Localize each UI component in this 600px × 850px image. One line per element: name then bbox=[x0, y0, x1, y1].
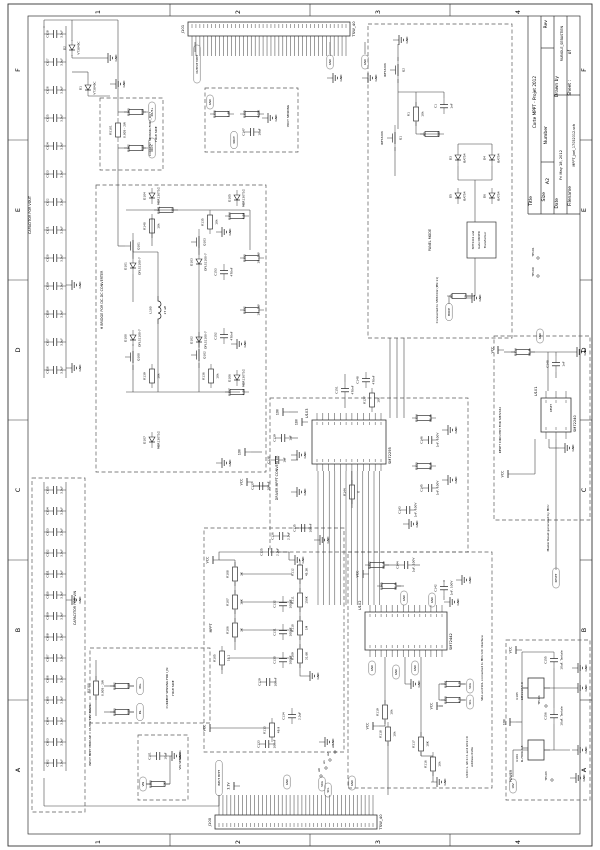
ic-part: R-7809-0.5 bbox=[520, 745, 524, 762]
block-power bbox=[506, 640, 590, 800]
gnd-label: GND bbox=[78, 596, 82, 604]
block-vin-caps bbox=[32, 478, 85, 812]
cap-ref: C156 bbox=[544, 712, 548, 720]
ic-part: LM1117-5.0 bbox=[520, 682, 524, 700]
resistor-body bbox=[350, 485, 355, 499]
zone-col-label: 2 bbox=[234, 10, 242, 14]
cap-ref: C123 bbox=[46, 170, 50, 178]
ic-ref: U103 bbox=[305, 409, 309, 419]
resistor-body bbox=[270, 723, 275, 737]
size-value: A2 bbox=[547, 178, 552, 184]
resistor-body bbox=[383, 705, 388, 719]
res-value: 45.3K bbox=[305, 568, 309, 576]
ic-body-U101 bbox=[541, 398, 571, 432]
cap-ref: C152 bbox=[214, 332, 218, 340]
cap-value: 3.3uF bbox=[60, 198, 64, 206]
gnd-label: GND bbox=[122, 80, 126, 88]
res-value: 68.4k bbox=[382, 561, 386, 569]
annotation: PANEL MODE bbox=[428, 229, 432, 251]
cap-ref: C126 bbox=[46, 86, 50, 94]
annotation: INPUT MPPT MODULE = OUTPUT PV PANEL bbox=[88, 704, 92, 766]
res-value: 10k bbox=[438, 761, 442, 767]
cap-ref: C140 bbox=[546, 360, 550, 368]
cap-value: 3.3uF bbox=[60, 254, 64, 262]
inductor-ref: L100 bbox=[149, 306, 153, 313]
res-ref: R1 bbox=[407, 112, 411, 116]
connector-body-J100 bbox=[215, 815, 377, 829]
gnd-label: GND bbox=[583, 348, 587, 356]
res-value: 68.4k bbox=[429, 414, 433, 422]
res-ref: R122 bbox=[368, 561, 372, 569]
rev-label: Rev bbox=[545, 20, 550, 29]
resistor-body bbox=[298, 565, 303, 579]
diode-ref: D6 bbox=[483, 194, 487, 198]
annotation: TP103 bbox=[544, 771, 548, 781]
cap-ref: C143 bbox=[398, 506, 402, 514]
res-value: 10 - 1W bbox=[257, 252, 261, 263]
block-panel-mode bbox=[368, 24, 512, 338]
mosfet-ref: Q1 bbox=[399, 136, 403, 140]
net-label-text: GND bbox=[285, 779, 289, 785]
cap-value: 470nF bbox=[230, 267, 234, 276]
cap-value: 1nF, 100V bbox=[436, 481, 440, 496]
net-label-text: SDA bbox=[468, 683, 472, 689]
zone-row-label: B bbox=[580, 628, 588, 632]
gnd-label: GND bbox=[584, 684, 588, 692]
cap-ref: C112 bbox=[46, 549, 50, 557]
power-flag-label: VCC bbox=[206, 556, 210, 563]
drawn-by-label: Drawn by bbox=[556, 76, 560, 97]
cap-value: 3.3uF bbox=[60, 30, 64, 38]
cap-value: 3.3uF bbox=[60, 717, 64, 725]
gnd-label: GND bbox=[78, 281, 82, 289]
annotation: A2 bbox=[326, 752, 330, 756]
net-label-text: GND bbox=[430, 597, 434, 603]
net-label-text: RESET bbox=[554, 573, 558, 582]
block-vout-sending bbox=[205, 88, 298, 152]
resistor-body bbox=[298, 621, 303, 635]
cap-ref: C124 bbox=[46, 142, 50, 150]
wire-segment bbox=[219, 552, 262, 560]
res-ref: R134 bbox=[228, 212, 232, 220]
cap-ref: C109 bbox=[46, 612, 50, 620]
annotation: SM72442 and bbox=[471, 230, 475, 249]
res-ref: R116 bbox=[424, 760, 428, 768]
diode-symbol bbox=[69, 45, 75, 50]
cap-value: 3.3uF bbox=[60, 612, 64, 620]
cap-ref: C120 bbox=[46, 254, 50, 262]
net-label-text: INPUT MPPT bbox=[217, 770, 221, 786]
res-ref: R143 bbox=[127, 108, 131, 116]
cap-value: 3.3uF bbox=[60, 226, 64, 234]
zone-col-label: 1 bbox=[94, 840, 102, 844]
cap-value: 1uF bbox=[289, 435, 293, 441]
resistor-body bbox=[233, 595, 238, 609]
cap-value: 3.3uF bbox=[60, 170, 64, 178]
zone-row-label: C bbox=[580, 487, 588, 492]
block-mppt bbox=[204, 528, 344, 752]
res-value: 10k bbox=[393, 731, 397, 737]
cap-value: 3.3uF bbox=[60, 759, 64, 767]
gnd-label: GND bbox=[303, 488, 307, 496]
gnd-label: GND bbox=[454, 426, 458, 434]
ic-body-U104 bbox=[528, 740, 544, 760]
mosfet-value: IRFS3206 bbox=[380, 131, 384, 145]
res-ref: RS101 bbox=[109, 125, 113, 135]
gnd-label: GND bbox=[417, 680, 421, 688]
zone-row-label: F bbox=[580, 68, 588, 72]
gnd-label: GND bbox=[584, 664, 588, 672]
gnd-label: GND bbox=[274, 114, 278, 122]
res-value: 2K bbox=[163, 782, 167, 786]
gnd-label: GND bbox=[301, 556, 305, 564]
res-value: 499 bbox=[141, 145, 145, 151]
cap-ref: C136 bbox=[271, 532, 275, 540]
res-ref: R126 bbox=[213, 110, 217, 118]
resistor-body bbox=[209, 369, 214, 383]
res-ref: R121 bbox=[444, 680, 448, 688]
cap-value: 1nF, 100V bbox=[450, 581, 454, 596]
diode-ref: D3 bbox=[449, 156, 453, 160]
zone-col-label: 4 bbox=[514, 840, 522, 844]
res-value: 0.005 - 2W bbox=[123, 122, 127, 138]
zone-row-label: E bbox=[580, 208, 588, 212]
zone-row-label: F bbox=[14, 68, 22, 72]
diode-symbol bbox=[455, 155, 461, 160]
cap-ref: C103 bbox=[46, 738, 50, 746]
cap-ref: C138 bbox=[267, 456, 271, 464]
cap-value: 10uF, Tantale bbox=[560, 706, 564, 726]
cap-ref: C137 bbox=[251, 482, 255, 490]
net-label-text: IIN+ bbox=[138, 683, 142, 689]
cap-value: 3.3uF bbox=[60, 282, 64, 290]
ic-body-U105 bbox=[528, 678, 544, 698]
diode-ref: D4 bbox=[483, 156, 487, 160]
annotation: CURRENT SENSING FOR I_IN bbox=[165, 668, 169, 709]
power-flag-label: 18V bbox=[295, 418, 299, 425]
cap-ref: C118 bbox=[46, 310, 50, 318]
annotation: MPPT bbox=[209, 623, 213, 633]
resistor-body bbox=[150, 369, 155, 383]
res-ref: R139 bbox=[143, 372, 147, 380]
diode-value: DFLS1100-7 bbox=[138, 329, 142, 347]
cap-value: 100nF bbox=[267, 481, 271, 490]
diode-ref: D107 bbox=[143, 436, 147, 444]
res-value: 4.7k bbox=[458, 697, 462, 704]
annotation: HIGH SIDE bbox=[171, 680, 175, 695]
ic-ref: U105 bbox=[515, 692, 519, 700]
cap-value: 470nF bbox=[351, 385, 355, 394]
res-ref: R119 bbox=[376, 708, 380, 716]
diode-value: MBR130T1G bbox=[157, 431, 161, 449]
diode-value: VT3845C bbox=[77, 41, 81, 54]
connector-part: TSW_40 bbox=[378, 814, 383, 831]
res-value: 2K bbox=[240, 572, 244, 576]
diode-value: BAT54 bbox=[463, 153, 467, 162]
zone-col-label: 4 bbox=[514, 10, 522, 14]
cap-value: 1nF, 100V bbox=[414, 503, 418, 518]
res-ref: R120 bbox=[444, 696, 448, 704]
annotation: RESET bbox=[549, 404, 553, 412]
gnd-label: GND bbox=[468, 576, 472, 584]
net-label-text: GND bbox=[350, 780, 354, 786]
cap-ref: C125 bbox=[260, 548, 264, 556]
annotation: Address 0x8A bbox=[470, 747, 474, 767]
cap-ref: C125 bbox=[46, 114, 50, 122]
gnd-label: GND bbox=[405, 36, 409, 44]
net-label-text: GND bbox=[363, 59, 367, 65]
annotation: DRIVER MPPT CONVERTER bbox=[275, 455, 279, 500]
cap-ref: C130 bbox=[273, 656, 277, 664]
zone-col-label: 3 bbox=[374, 10, 382, 14]
gnd-label: GND bbox=[584, 746, 588, 754]
res-value: 2k bbox=[464, 294, 468, 298]
diode-value: DFLS1100-7 bbox=[204, 253, 208, 271]
cap-ref: C105 bbox=[46, 696, 50, 704]
testpoint-dot bbox=[329, 759, 331, 761]
cap-value: 1uF bbox=[283, 457, 287, 463]
power-flag-label: VCC bbox=[430, 702, 434, 709]
res-value: 499 bbox=[127, 683, 131, 689]
annotation: A0 bbox=[317, 768, 321, 772]
cap-ref: C134 bbox=[282, 712, 286, 720]
resistor-body bbox=[94, 681, 99, 695]
diode-value: BAT54 bbox=[463, 191, 467, 200]
gnd-label: GND bbox=[303, 451, 307, 459]
res-value: 49.9 bbox=[277, 727, 281, 734]
title-value: Corte MPPT - Projet 2012 bbox=[533, 76, 537, 128]
ic-ref: U102 bbox=[358, 601, 362, 611]
cap-ref: C121 bbox=[46, 226, 50, 234]
cap-ref: C151 bbox=[335, 386, 339, 394]
cap-value: 470nF bbox=[372, 375, 376, 384]
mosfet-ref: Q103 bbox=[203, 238, 207, 246]
annotation: Transformer bbox=[483, 231, 487, 249]
annotation: Gate DRIVER bbox=[477, 231, 481, 249]
gnd-label: GND bbox=[78, 364, 82, 372]
cap-ref: C142 bbox=[434, 584, 438, 592]
cap-ref: C110 bbox=[46, 591, 50, 599]
net-label-text: GND bbox=[413, 665, 417, 671]
res-ref: R114 bbox=[514, 348, 518, 356]
net-label-text: 18V bbox=[511, 783, 515, 788]
diode-value: MBR130T1G bbox=[242, 189, 246, 207]
diode-ref: D106 bbox=[228, 374, 232, 382]
res-value: 499 bbox=[127, 709, 131, 715]
annotation: TP101 bbox=[531, 247, 535, 257]
resistor-body bbox=[386, 727, 391, 741]
res-ref: R117 bbox=[412, 740, 416, 748]
diode-value: VT3845C bbox=[93, 81, 97, 94]
res-ref: R144 bbox=[343, 488, 347, 496]
res-ref: R102 bbox=[113, 682, 117, 690]
cap-value: 3.3uF bbox=[60, 58, 64, 66]
annotation: SDA and SCL connected to MCU I2C interfa… bbox=[480, 635, 484, 701]
cap-ref: C102 bbox=[46, 759, 50, 767]
inductor-symbol bbox=[158, 296, 161, 324]
resistor-body bbox=[419, 737, 424, 751]
resistor-body bbox=[414, 107, 419, 121]
diode-symbol bbox=[130, 335, 136, 340]
cap-ref: C108 bbox=[46, 633, 50, 641]
annotation: H BRIDGE FOR DC-DC CONVERTER bbox=[100, 270, 104, 329]
cap-ref: C114 bbox=[46, 507, 50, 515]
gnd-label: GND bbox=[454, 476, 458, 484]
res-value: 10k bbox=[421, 111, 425, 117]
diode-ref: D105 bbox=[228, 194, 232, 202]
cap-ref: C122 bbox=[46, 198, 50, 206]
connector-ref: J101 bbox=[180, 24, 185, 34]
wire-segment bbox=[300, 664, 304, 676]
cap-value: 3.3uF bbox=[60, 675, 64, 683]
cap-value: 470nF bbox=[230, 331, 234, 340]
res-ref: R125 bbox=[243, 110, 247, 118]
res-ref: R132 bbox=[243, 306, 247, 314]
date-label: Date bbox=[556, 198, 560, 209]
res-ref: R137 bbox=[228, 388, 232, 396]
net-label-text: SCL bbox=[326, 787, 330, 793]
diode-symbol bbox=[455, 193, 461, 198]
net-label-text: GND bbox=[394, 669, 398, 675]
diode-value: DFLS1100-7 bbox=[138, 257, 142, 275]
cap-ref: C101 bbox=[148, 752, 152, 760]
diode-ref: D100 bbox=[124, 334, 128, 342]
cap-value: 1uF, 100V bbox=[412, 558, 416, 573]
cap-ref: C119 bbox=[46, 282, 50, 290]
ic-body-U103 bbox=[312, 420, 386, 464]
zone-col-label: 1 bbox=[94, 10, 102, 14]
res-value: 10 bbox=[171, 208, 175, 212]
diode-ref: D5 bbox=[449, 194, 453, 198]
res-value: 4.99 bbox=[242, 389, 246, 396]
zone-row-label: D bbox=[14, 347, 22, 352]
res-value: 10k bbox=[215, 219, 219, 225]
cap-value: 100nF bbox=[273, 739, 277, 748]
cap-ref: C133 bbox=[257, 740, 261, 748]
net-label-text: IIN- bbox=[138, 710, 142, 715]
mosfet-ref: Q101 bbox=[137, 242, 141, 250]
res-value: 31.6K bbox=[305, 652, 309, 660]
gnd-label: GND bbox=[415, 520, 419, 528]
cap-value: 1nF, 100V bbox=[436, 433, 440, 448]
schematic-page: { "colors":{"ink":"#1a1a1a","wire":"#3a3… bbox=[0, 0, 600, 850]
cap-ref: C127 bbox=[46, 58, 50, 66]
res-ref: R106 bbox=[226, 626, 230, 634]
res-value: 4.99 bbox=[242, 213, 246, 220]
diode-symbol bbox=[149, 437, 155, 442]
annotation: RESET CIRCUITRY FOR SM72442 bbox=[498, 407, 502, 454]
res-ref: R124 bbox=[415, 414, 419, 422]
cap-value: 3.3uF bbox=[60, 142, 64, 150]
annotation: Master Reset generated by MCU bbox=[546, 505, 550, 552]
diode-symbol bbox=[130, 263, 136, 268]
net-label-text: VIN bbox=[141, 782, 145, 787]
diode-symbol bbox=[234, 375, 240, 380]
net-label-text: MODE bbox=[447, 308, 451, 317]
res-value: 10K bbox=[426, 741, 430, 747]
zone-col-label: 3 bbox=[374, 840, 382, 844]
gnd-label: GND bbox=[374, 74, 378, 82]
inductor-value: 27 uH bbox=[163, 306, 167, 315]
cap-ref: C132 bbox=[273, 600, 277, 608]
filename-value: MPPT_joel_17052012.sch bbox=[573, 124, 576, 167]
number-label: Number bbox=[545, 126, 550, 144]
gnd-label: GND bbox=[228, 228, 232, 236]
res-value: 10K bbox=[240, 599, 244, 605]
block-h-bridge bbox=[96, 185, 266, 472]
power-flag-label: VCC bbox=[240, 478, 244, 485]
annotation: POWER bbox=[509, 769, 513, 782]
res-ref: R123 bbox=[415, 462, 419, 470]
diode-value: BAT54 bbox=[497, 191, 501, 200]
annotation: A3 bbox=[331, 744, 335, 748]
annotation: VIN SENDING bbox=[178, 750, 182, 769]
cap-ref: C139 bbox=[273, 434, 277, 442]
resistor-body bbox=[298, 593, 303, 607]
diode-symbol bbox=[234, 195, 240, 200]
res-ref: R145 bbox=[380, 582, 384, 590]
ic-part: SM72295 bbox=[388, 447, 392, 464]
gnd-label: GND bbox=[456, 598, 460, 606]
of-label: of bbox=[569, 50, 573, 54]
res-ref: R2 bbox=[423, 132, 427, 136]
diode-symbol bbox=[489, 155, 495, 160]
cap-ref: C135 bbox=[293, 524, 297, 532]
resistor-body bbox=[233, 623, 238, 637]
connector-part: TSW_40 bbox=[351, 21, 356, 38]
drawn-by-value: RUBIOLE_SEBASTIEN bbox=[561, 26, 564, 61]
diode-symbol bbox=[85, 85, 91, 90]
power-flag-label: 10V bbox=[276, 408, 280, 415]
resistor-body bbox=[233, 567, 238, 581]
cap-ref: C146 bbox=[420, 436, 424, 444]
testpoint-dot bbox=[551, 779, 553, 781]
net-label-text: GND bbox=[208, 99, 212, 105]
cap-ref: C155 bbox=[544, 656, 548, 664]
filename-label: Filename bbox=[569, 186, 573, 206]
resistor-body bbox=[370, 393, 375, 407]
res-value: 499 bbox=[437, 131, 441, 137]
annotation: Connected to SM72442 (PIN 11) bbox=[435, 277, 439, 323]
res-ref: R3 bbox=[450, 294, 454, 298]
ic-body-U102 bbox=[365, 612, 447, 650]
cap-ref: C107 bbox=[46, 654, 50, 662]
res-value: 1M bbox=[305, 625, 309, 630]
res-value: 19.1 bbox=[227, 655, 231, 662]
cap-value: 100nF bbox=[289, 599, 293, 608]
diode-ref: D102 bbox=[190, 336, 194, 344]
annotation: TP100 bbox=[531, 267, 535, 277]
cap-value: 100nF bbox=[289, 627, 293, 636]
cap-value: 3.3uF bbox=[60, 114, 64, 122]
ic-part: SM72240 bbox=[573, 414, 577, 432]
cap-value: 3.3uF bbox=[60, 366, 64, 374]
zone-row-label: C bbox=[14, 487, 22, 492]
gnd-label: GND bbox=[316, 672, 320, 680]
schematic-canvas: 11223344FFEEDDCCBBAAC1283.3uFC1273.3uFC1… bbox=[0, 0, 600, 850]
diode-value: BAT54 bbox=[497, 153, 501, 162]
res-ref: R136 bbox=[202, 372, 206, 380]
res-ref: R140 bbox=[143, 222, 147, 230]
testpoint-dot bbox=[537, 275, 539, 277]
annotation: I2C0=1, I2C1=1 and I2C2=0 bbox=[465, 736, 469, 778]
size-label: Size bbox=[543, 192, 548, 201]
cap-ref: C148 bbox=[356, 376, 360, 384]
annotation: A1 bbox=[322, 760, 326, 764]
cap-value: 100nF bbox=[289, 655, 293, 664]
cap-ref: C111 bbox=[46, 570, 50, 578]
annotation: CAPACITOR FOR VOUT bbox=[28, 195, 32, 234]
